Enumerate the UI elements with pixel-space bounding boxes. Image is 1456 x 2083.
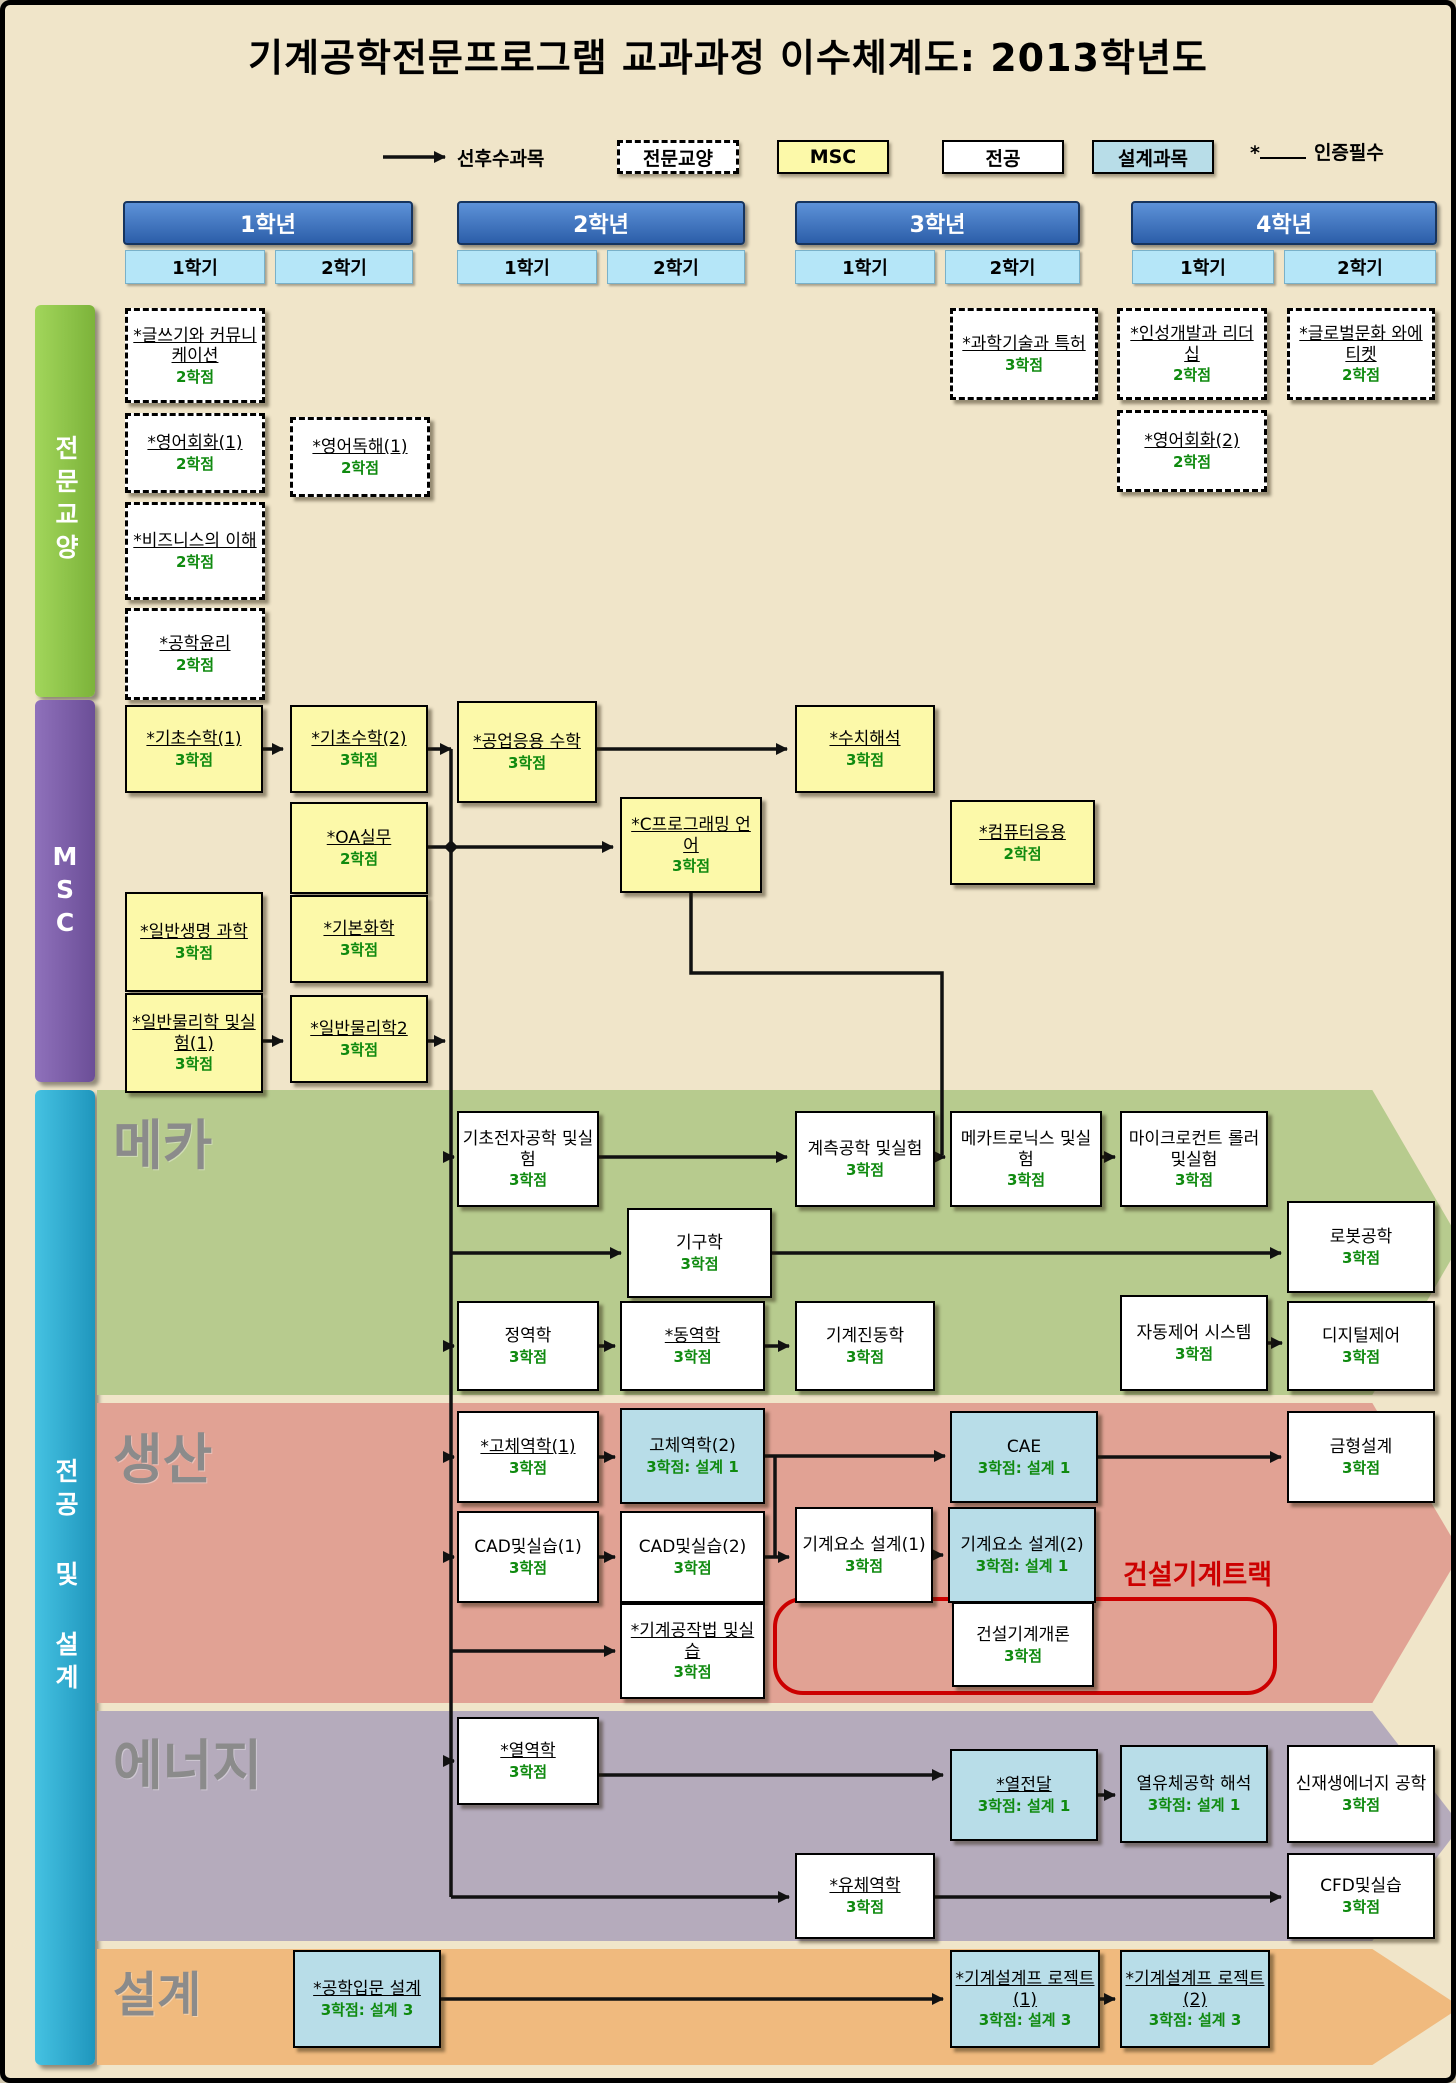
course-credits: 3학점: 설계 1: [646, 1459, 739, 1476]
course-name: *영어회화(1): [147, 433, 242, 454]
construction-track-label: 건설기계트랙: [1123, 1553, 1272, 1592]
course-credits: 3학점: 설계 3: [1149, 2012, 1242, 2029]
course-box: *기계설계프 로젝트(2)3학점: 설계 3: [1120, 1950, 1270, 2048]
course-credits: 3학점: [1342, 1349, 1380, 1366]
course-box: *C프로그래밍 언어3학점: [620, 797, 762, 893]
course-box: 고체역학(2)3학점: 설계 1: [620, 1408, 765, 1504]
course-credits: 2학점: [1003, 846, 1041, 863]
course-credits: 3학점: [1004, 1648, 1042, 1665]
course-credits: 2학점: [1173, 454, 1211, 471]
course-name: *영어독해(1): [312, 437, 407, 458]
course-name: *열역학: [500, 1741, 555, 1762]
course-box: *동역학3학점: [620, 1301, 765, 1391]
course-name: *기계공작법 및실습: [625, 1621, 760, 1662]
course-credits: 3학점: [672, 858, 710, 875]
course-name: *OA실무: [327, 828, 392, 849]
course-name: *일반물리학2: [310, 1019, 408, 1040]
course-name: 건설기계개론: [976, 1625, 1070, 1646]
course-box: 기초전자공학 및실험3학점: [457, 1111, 599, 1207]
curriculum-flowchart-page: 기계공학전문프로그램 교과과정 이수체계도: 2013학년도 선후수과목 전문교…: [0, 0, 1456, 2083]
course-credits: 3학점: [846, 1162, 884, 1179]
course-credits: 3학점: [340, 942, 378, 959]
course-name: 신재생에너지 공학: [1296, 1774, 1427, 1795]
course-credits: 3학점: [845, 1558, 883, 1575]
course-box: *기본화학3학점: [290, 895, 428, 983]
course-credits: 2학점: [1342, 367, 1380, 384]
course-credits: 2학점: [1173, 367, 1211, 384]
course-name: 기구학: [676, 1233, 723, 1254]
course-box: *열역학3학점: [457, 1717, 599, 1805]
course-credits: 3학점: [175, 945, 213, 962]
course-credits: 3학점: [1007, 1172, 1045, 1189]
course-name: *비즈니스의 이해: [133, 531, 256, 552]
course-box: 메카트로닉스 및실험3학점: [950, 1111, 1102, 1207]
course-name: *고체역학(1): [480, 1437, 575, 1458]
course-box: *컴퓨터응용2학점: [950, 800, 1095, 885]
course-credits: 3학점: 설계 1: [978, 1798, 1071, 1815]
course-name: *인성개발과 리더십: [1123, 324, 1261, 365]
course-name: 디지털제어: [1322, 1326, 1400, 1347]
course-name: *글로벌문화 와에티켓: [1293, 324, 1429, 365]
course-name: 기계요소 설계(1): [802, 1535, 925, 1556]
course-credits: 2학점: [176, 369, 214, 386]
course-box: *기계설계프 로젝트(1)3학점: 설계 3: [950, 1950, 1100, 2048]
course-credits: 3학점: 설계 1: [976, 1558, 1069, 1575]
course-credits: 3학점: [1342, 1797, 1380, 1814]
course-box: 금형설계3학점: [1287, 1411, 1435, 1503]
course-box: *공학윤리2학점: [125, 608, 265, 700]
course-name: *C프로그래밍 언어: [625, 815, 757, 856]
course-box: *공업응용 수학3학점: [457, 701, 597, 803]
course-credits: 3학점: 설계 3: [979, 2012, 1072, 2029]
course-credits: 3학점: [175, 1056, 213, 1073]
course-box: 기계진동학3학점: [795, 1301, 935, 1391]
course-box: 신재생에너지 공학3학점: [1287, 1745, 1435, 1843]
course-box: *고체역학(1)3학점: [457, 1411, 599, 1503]
course-box: *OA실무2학점: [290, 802, 428, 894]
course-name: *공학입문 설계: [313, 1979, 421, 2000]
course-box: *유체역학3학점: [795, 1853, 935, 1939]
course-credits: 3학점: [340, 752, 378, 769]
course-box: *일반생명 과학3학점: [125, 892, 263, 992]
course-box: 로봇공학3학점: [1287, 1201, 1435, 1293]
course-box: *기초수학(1)3학점: [125, 705, 263, 793]
course-credits: 3학점: [1005, 357, 1043, 374]
course-name: CAD및실습(1): [474, 1537, 582, 1558]
course-credits: 3학점: [846, 1349, 884, 1366]
course-credits: 3학점: 설계 3: [321, 2002, 414, 2019]
course-name: *글쓰기와 커뮤니케이션: [131, 326, 259, 367]
course-credits: 3학점: [509, 1764, 547, 1781]
course-name: CAE: [1007, 1437, 1041, 1458]
course-box: *영어독해(1)2학점: [290, 417, 430, 497]
course-name: 정역학: [505, 1326, 552, 1347]
course-name: CAD및실습(2): [639, 1537, 747, 1558]
course-name: *기초수학(2): [311, 729, 406, 750]
course-box: CAD및실습(1)3학점: [457, 1511, 599, 1603]
course-name: *동역학: [665, 1326, 720, 1347]
course-credits: 2학점: [340, 851, 378, 868]
course-credits: 3학점: [1342, 1899, 1380, 1916]
course-credits: 3학점: 설계 1: [1148, 1797, 1241, 1814]
course-box: *영어회화(1)2학점: [125, 413, 265, 493]
course-credits: 3학점: [846, 1899, 884, 1916]
course-name: 계측공학 및실험: [808, 1139, 923, 1160]
course-name: 기계진동학: [826, 1326, 904, 1347]
course-name: 자동제어 시스템: [1137, 1323, 1252, 1344]
course-name: *일반물리학 및실험(1): [130, 1013, 258, 1054]
course-name: 로봇공학: [1330, 1227, 1393, 1248]
course-credits: 2학점: [176, 554, 214, 571]
course-name: CFD및실습: [1320, 1876, 1402, 1897]
course-credits: 3학점: [509, 1349, 547, 1366]
course-box: 기구학3학점: [627, 1208, 772, 1298]
course-credits: 3학점: [680, 1256, 718, 1273]
course-name: *열전달: [996, 1775, 1051, 1796]
course-box: 기계요소 설계(2)3학점: 설계 1: [948, 1507, 1096, 1603]
course-box: 계측공학 및실험3학점: [795, 1111, 935, 1207]
course-box: 기계요소 설계(1)3학점: [795, 1507, 933, 1603]
course-box: *일반물리학23학점: [290, 995, 428, 1083]
course-name: *일반생명 과학: [140, 922, 248, 943]
course-credits: 3학점: [175, 752, 213, 769]
course-box: CFD및실습3학점: [1287, 1853, 1435, 1939]
course-credits: 3학점: [673, 1560, 711, 1577]
course-name: *유체역학: [829, 1876, 900, 1897]
course-box: *과학기술과 특허3학점: [950, 308, 1098, 400]
course-name: 고체역학(2): [649, 1436, 736, 1457]
course-name: 금형설계: [1330, 1437, 1393, 1458]
course-name: *과학기술과 특허: [962, 334, 1085, 355]
course-credits: 2학점: [176, 657, 214, 674]
course-credits: 3학점: [1175, 1172, 1213, 1189]
course-box: 열유체공학 해석3학점: 설계 1: [1120, 1745, 1268, 1843]
course-box: *인성개발과 리더십2학점: [1117, 308, 1267, 400]
course-name: *영어회화(2): [1144, 431, 1239, 452]
course-box: 자동제어 시스템3학점: [1120, 1295, 1268, 1391]
course-box: CAD및실습(2)3학점: [620, 1511, 765, 1603]
course-name: 기초전자공학 및실험: [462, 1129, 594, 1170]
course-name: *기계설계프 로젝트(2): [1125, 1969, 1265, 2010]
course-credits: 3학점: [673, 1664, 711, 1681]
course-credits: 3학점: [340, 1042, 378, 1059]
course-box: *수치해석3학점: [795, 705, 935, 793]
course-box: *비즈니스의 이해2학점: [125, 502, 265, 600]
course-name: *공학윤리: [159, 634, 230, 655]
course-credits: 3학점: [1175, 1346, 1213, 1363]
course-box: 건설기계개론3학점: [952, 1602, 1094, 1687]
course-credits: 3학점: [509, 1460, 547, 1477]
course-box: CAE3학점: 설계 1: [950, 1411, 1098, 1503]
course-box: *공학입문 설계3학점: 설계 3: [293, 1950, 441, 2048]
course-name: 기계요소 설계(2): [960, 1535, 1083, 1556]
course-name: *기초수학(1): [146, 729, 241, 750]
course-name: *기본화학: [323, 919, 394, 940]
course-credits: 3학점: [509, 1560, 547, 1577]
course-credits: 3학점: [1342, 1460, 1380, 1477]
course-name: *기계설계프 로젝트(1): [955, 1969, 1095, 2010]
course-box: *기계공작법 및실습3학점: [620, 1603, 765, 1699]
course-name: *컴퓨터응용: [979, 823, 1066, 844]
course-credits: 3학점: 설계 1: [978, 1460, 1071, 1477]
course-credits: 3학점: [846, 752, 884, 769]
course-box: 디지털제어3학점: [1287, 1301, 1435, 1391]
course-credits: 3학점: [673, 1349, 711, 1366]
course-name: 메카트로닉스 및실험: [955, 1129, 1097, 1170]
course-credits: 3학점: [509, 1172, 547, 1189]
course-credits: 3학점: [1342, 1250, 1380, 1267]
course-box: *영어회화(2)2학점: [1117, 410, 1267, 492]
course-box: *열전달3학점: 설계 1: [950, 1749, 1098, 1841]
course-name: 마이크로컨트 롤러및실험: [1125, 1129, 1263, 1170]
course-box: 정역학3학점: [457, 1301, 599, 1391]
course-box: *일반물리학 및실험(1)3학점: [125, 993, 263, 1093]
course-box: *기초수학(2)3학점: [290, 705, 428, 793]
course-name: 열유체공학 해석: [1137, 1774, 1252, 1795]
course-name: *수치해석: [829, 729, 900, 750]
course-box: 마이크로컨트 롤러및실험3학점: [1120, 1111, 1268, 1207]
course-box: *글로벌문화 와에티켓2학점: [1287, 308, 1435, 400]
course-name: *공업응용 수학: [473, 732, 581, 753]
course-credits: 3학점: [508, 755, 546, 772]
course-credits: 2학점: [341, 460, 379, 477]
course-box: *글쓰기와 커뮤니케이션2학점: [125, 308, 265, 403]
course-credits: 2학점: [176, 456, 214, 473]
